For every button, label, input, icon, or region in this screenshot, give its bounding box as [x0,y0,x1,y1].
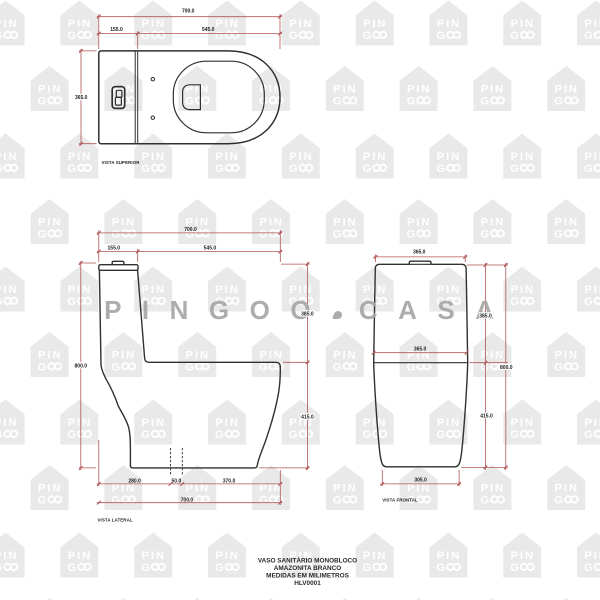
svg-text:545.0: 545.0 [202,27,215,33]
svg-text:415.0: 415.0 [301,415,314,421]
svg-text:PINGOO.CASA: PINGOO.CASA [104,295,514,325]
svg-text:365.0: 365.0 [75,95,88,101]
svg-text:365.0: 365.0 [413,249,426,255]
svg-text:280.0: 280.0 [128,479,141,485]
svg-text:305.0: 305.0 [414,477,427,483]
svg-text:MEDIDAS EM MILIMETROS: MEDIDAS EM MILIMETROS [266,573,349,580]
svg-text:700.0: 700.0 [181,498,194,504]
svg-text:VISTA SUPERIOR: VISTA SUPERIOR [102,160,141,165]
svg-text:800.0: 800.0 [500,365,513,371]
svg-text:HLV0001: HLV0001 [294,580,321,587]
svg-text:545.0: 545.0 [204,246,217,252]
svg-text:AMAZONITA BRANCO: AMAZONITA BRANCO [274,565,341,572]
svg-text:VISTA LATERAL: VISTA LATERAL [98,518,133,523]
svg-text:VASO SANITÁRIO MONOBLOCO: VASO SANITÁRIO MONOBLOCO [258,556,357,565]
svg-text:385.0: 385.0 [479,314,492,320]
svg-text:700.0: 700.0 [184,227,197,233]
svg-text:VISTA FRONTAL: VISTA FRONTAL [382,497,418,502]
svg-text:155.0: 155.0 [108,246,121,252]
svg-text:385.0: 385.0 [301,312,314,318]
svg-text:700.0: 700.0 [182,9,195,15]
svg-text:365.0: 365.0 [414,347,427,353]
svg-text:415.0: 415.0 [480,414,493,420]
svg-text:155.0: 155.0 [110,27,123,33]
svg-text:800.0: 800.0 [75,363,88,369]
svg-text:50.0: 50.0 [172,479,182,485]
svg-text:370.0: 370.0 [223,479,236,485]
